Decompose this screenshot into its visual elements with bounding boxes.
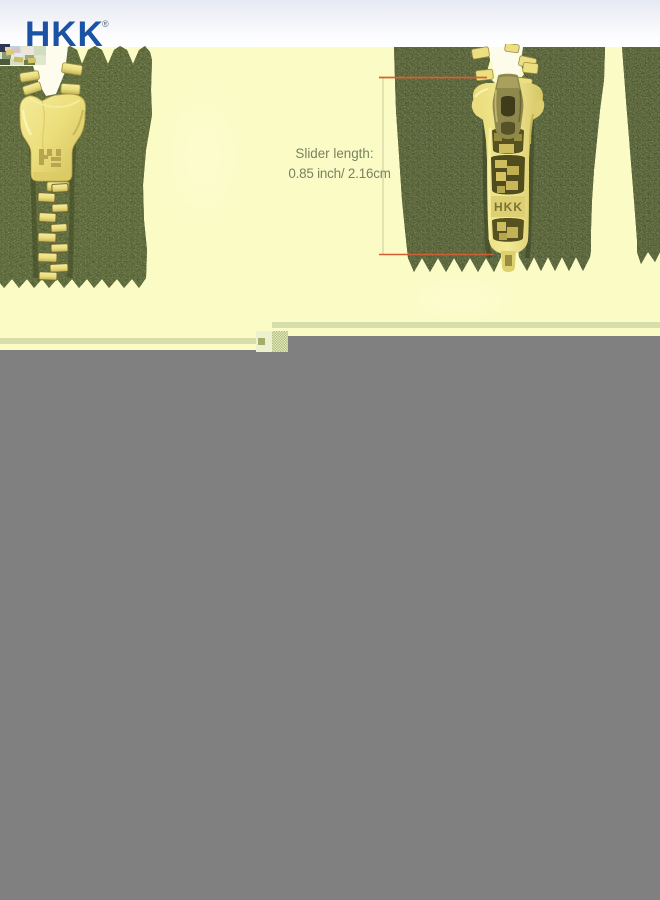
svg-text:HKK: HKK — [494, 200, 522, 214]
